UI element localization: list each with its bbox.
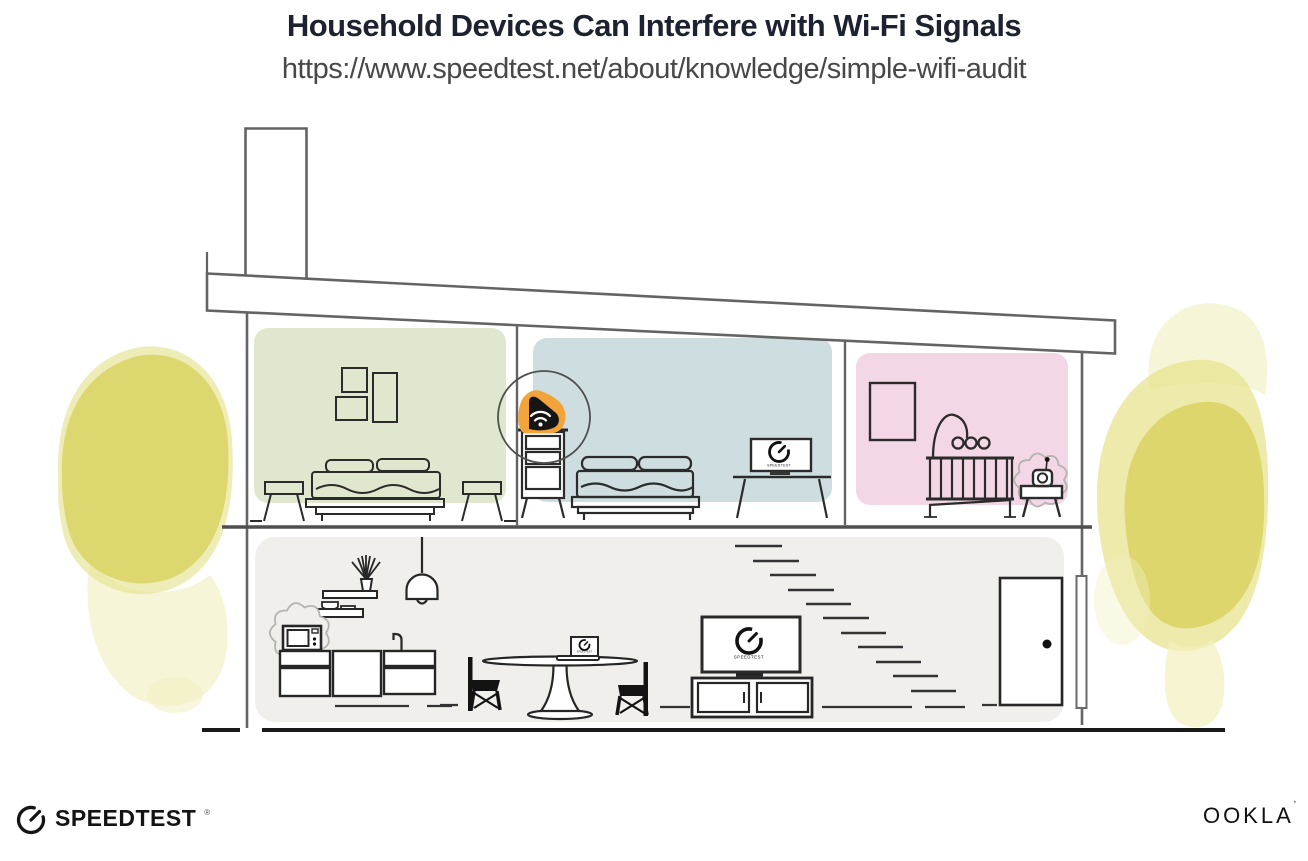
- speedtest-gauge-icon: [14, 801, 48, 835]
- downspout: [1077, 576, 1087, 708]
- router-shelf-unit: [518, 430, 568, 518]
- baby-monitor: [1014, 454, 1066, 517]
- house-cutaway-illustration: SPEEDTEST: [0, 0, 1308, 861]
- media-console: [692, 678, 812, 717]
- registered-mark: ®: [204, 808, 210, 817]
- tree-left: [58, 346, 233, 713]
- front-door: [1000, 578, 1062, 705]
- tv-label: SPEEDTEST: [734, 655, 764, 660]
- infographic-page: Household Devices Can Interfere with Wi-…: [0, 0, 1308, 861]
- desk-monitor-label: SPEEDTEST: [767, 464, 791, 468]
- chimney: [246, 129, 307, 281]
- laptop-label: SPEEDTEST: [577, 652, 593, 654]
- bedroom-left-wall: [254, 328, 506, 503]
- tree-right: [1094, 303, 1268, 727]
- tv: SPEEDTEST: [702, 617, 800, 675]
- ookla-wordmark: OOKLA: [1203, 803, 1294, 828]
- door-knob: [1043, 640, 1052, 649]
- trademark-mark: ’: [1294, 800, 1296, 811]
- antenna-tip: [1045, 457, 1050, 462]
- ookla-logo: OOKLA’: [1203, 803, 1296, 829]
- speedtest-logo: SPEEDTEST®: [14, 801, 209, 835]
- speedtest-wordmark: SPEEDTEST: [55, 805, 196, 832]
